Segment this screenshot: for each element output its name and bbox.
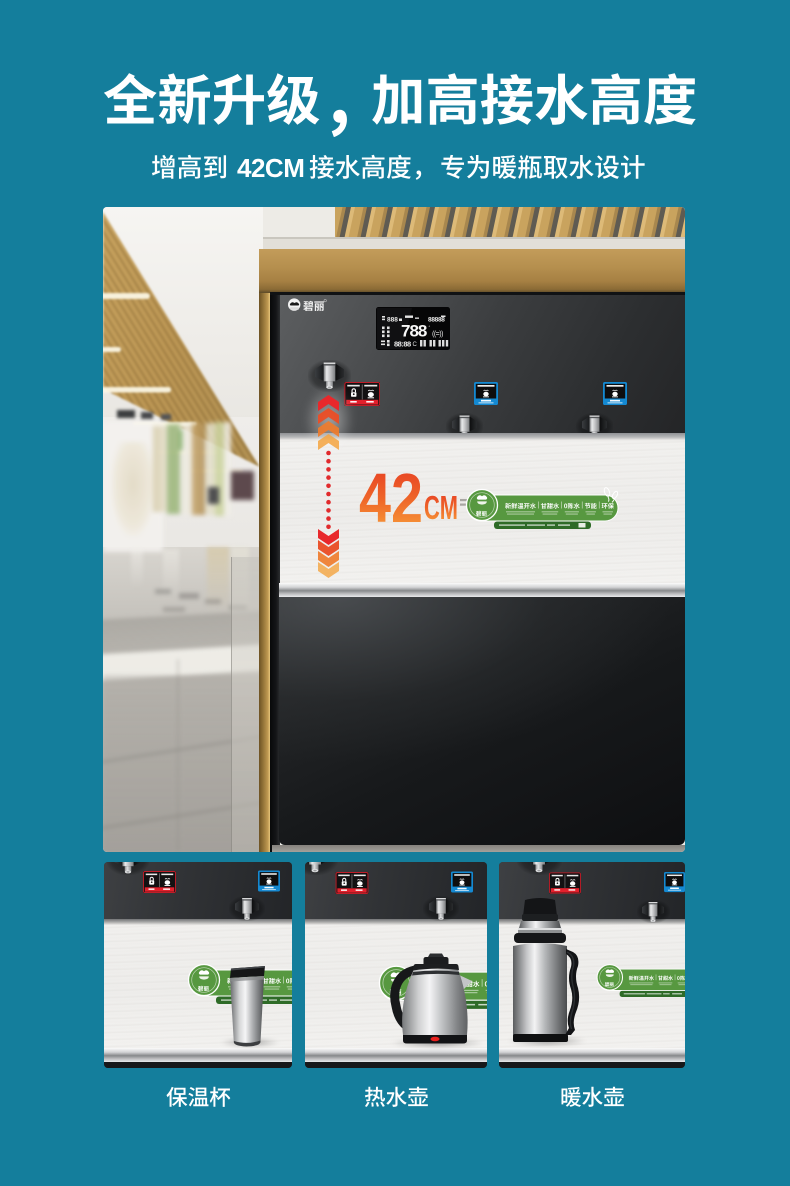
- svg-text:°: °: [429, 325, 431, 330]
- svg-text:88888: 88888: [428, 317, 445, 324]
- svg-text:((=)): ((=)): [432, 331, 443, 338]
- svg-text:C: C: [413, 342, 418, 348]
- svg-text:888: 888: [387, 317, 398, 324]
- svg-text:788: 788: [401, 322, 427, 341]
- svg-text:88:88: 88:88: [394, 340, 411, 349]
- svg-text:42: 42: [359, 459, 423, 532]
